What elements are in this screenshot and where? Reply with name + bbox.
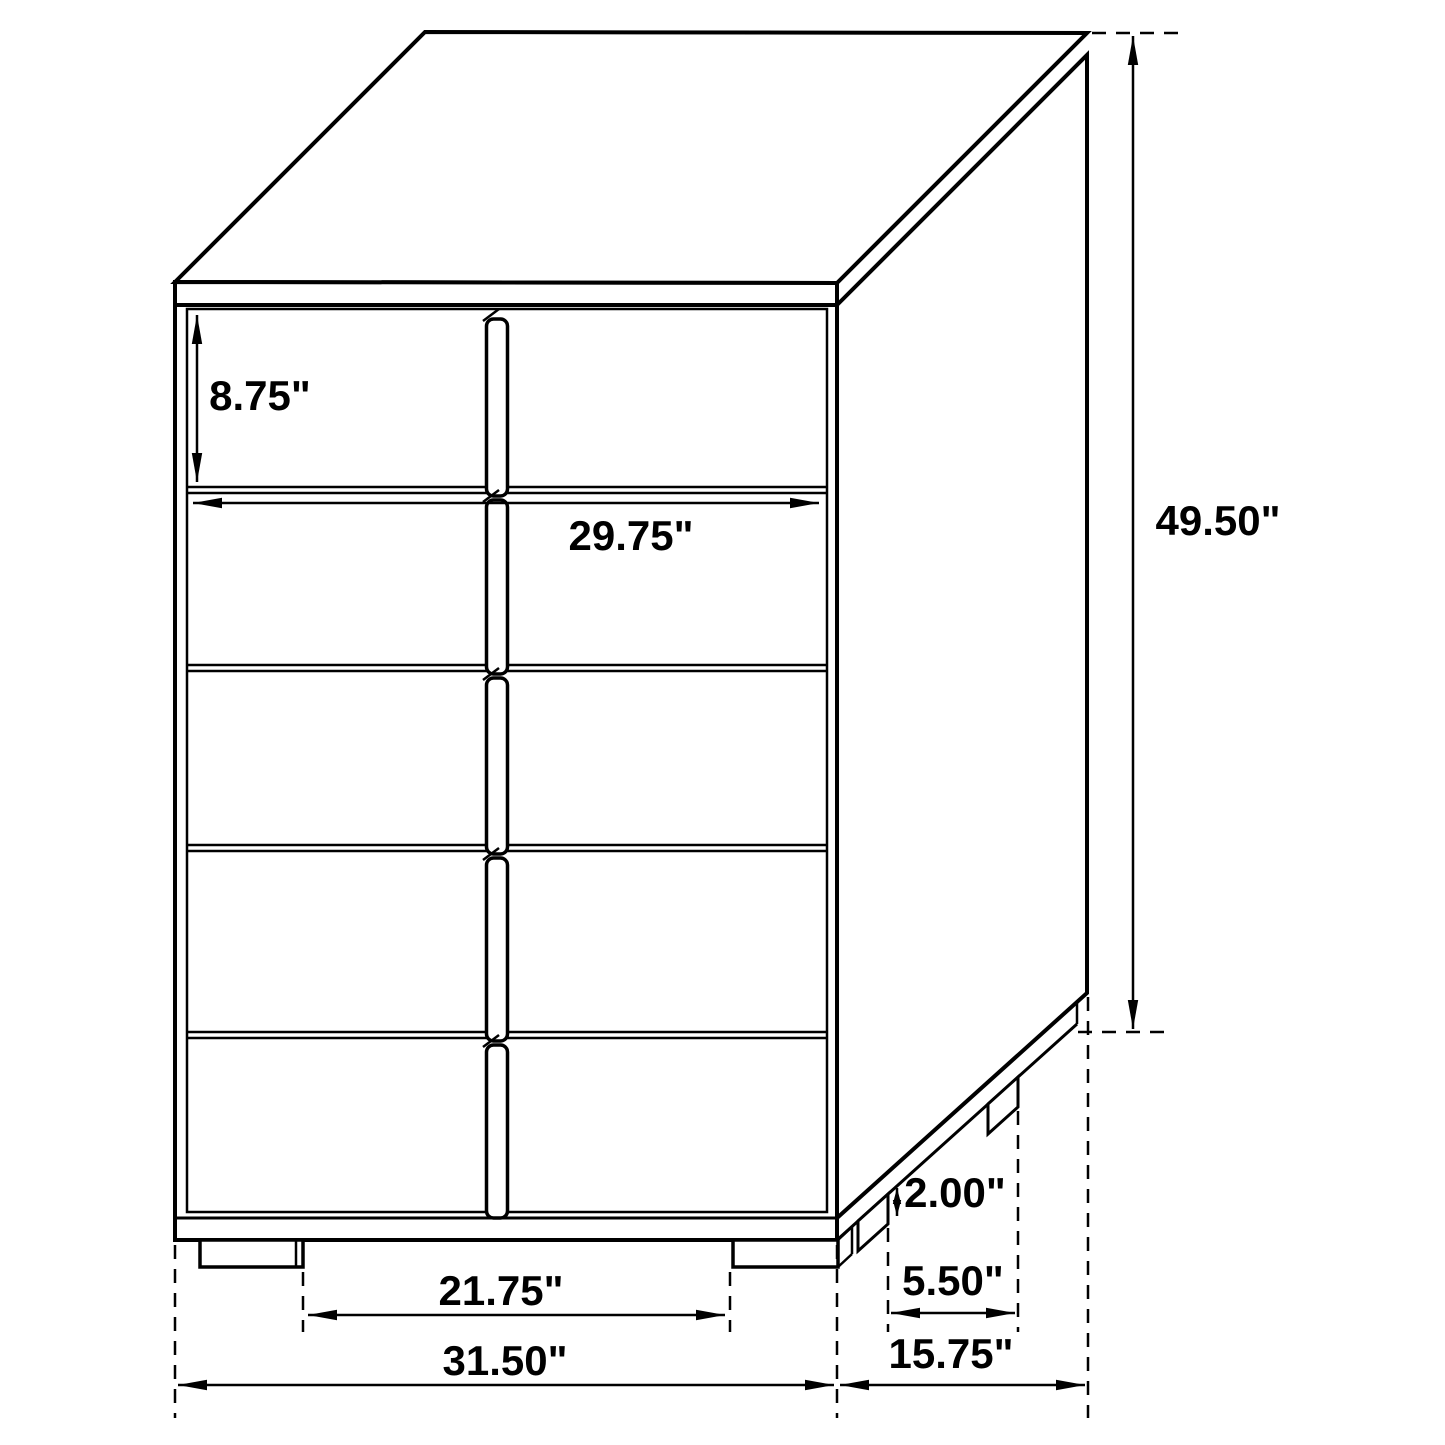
dim-overall-width: 31.50" (178, 1337, 834, 1385)
dim-label-overall-depth: 15.75" (888, 1330, 1013, 1377)
dim-label-leg-height: 2.00" (904, 1169, 1006, 1216)
dim-side-leg-inset: 5.50" (891, 1257, 1015, 1313)
dim-overall-depth: 15.75" (840, 1330, 1085, 1385)
dim-label-drawer-width: 29.75" (568, 512, 693, 559)
dim-label-overall-width: 31.50" (442, 1337, 567, 1384)
dimension-diagram-page: 8.75" 29.75" 49.50" 2.00" 5.50" 21.75" 3… (0, 0, 1445, 1445)
dim-label-front-leg-span: 21.75" (438, 1267, 563, 1314)
dim-label-side-leg-inset: 5.50" (902, 1257, 1004, 1304)
dim-overall-height: 49.50" (1133, 36, 1281, 1029)
dim-label-overall-height: 49.50" (1155, 497, 1280, 544)
dimension-diagram: 8.75" 29.75" 49.50" 2.00" 5.50" 21.75" 3… (0, 0, 1445, 1445)
dim-leg-height: 2.00" (897, 1169, 1006, 1216)
dim-front-leg-span: 21.75" (308, 1267, 725, 1315)
dim-label-drawer-height: 8.75" (209, 372, 311, 419)
drawer-handles (483, 309, 508, 1218)
